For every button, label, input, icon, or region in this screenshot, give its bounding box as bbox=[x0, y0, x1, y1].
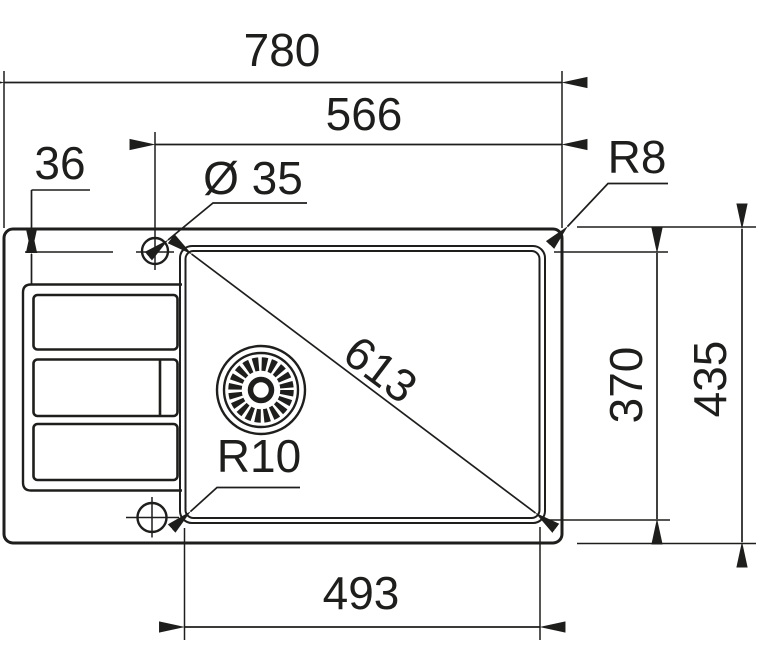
dim-outer-corner-radius: R8 bbox=[568, 131, 669, 227]
dim-label-780: 780 bbox=[244, 24, 321, 76]
strainer-teeth-ring bbox=[235, 364, 287, 416]
dim-label-r10: R10 bbox=[217, 430, 301, 482]
dim-tap-offset: 36 bbox=[32, 137, 91, 285]
dim-label-36: 36 bbox=[34, 137, 85, 189]
tap-hole-marker-bottom bbox=[126, 497, 179, 538]
sink-body bbox=[4, 229, 562, 543]
dim-label-435: 435 bbox=[684, 341, 736, 418]
sink-technical-drawing: 780 566 36 Ø 35 R8 613 bbox=[0, 0, 773, 652]
drainboard-outline bbox=[23, 285, 182, 491]
dimensions: 780 566 36 Ø 35 R8 613 bbox=[4, 24, 756, 640]
dim-label-dia35: Ø 35 bbox=[203, 152, 303, 204]
dim-label-370: 370 bbox=[600, 347, 652, 424]
technical-drawing-canvas: 780 566 36 Ø 35 R8 613 bbox=[0, 0, 773, 652]
dim-bowl-corner-radius: R10 bbox=[191, 430, 302, 512]
dim-tap-hole-diameter: Ø 35 bbox=[168, 152, 307, 240]
strainer-center-ring bbox=[251, 380, 272, 401]
tap-hole-marker-top bbox=[25, 238, 174, 264]
drainboard-rib-2 bbox=[34, 360, 178, 417]
drainboard-rib-3 bbox=[34, 424, 178, 480]
dim-label-613: 613 bbox=[334, 325, 427, 413]
drainboard-rib-1 bbox=[34, 295, 178, 350]
dim-label-493: 493 bbox=[323, 567, 400, 619]
dim-bowl-width: 370 bbox=[548, 252, 670, 520]
drain-strainer bbox=[217, 346, 305, 434]
dim-label-r8: R8 bbox=[608, 131, 667, 183]
dim-label-566: 566 bbox=[326, 88, 403, 140]
